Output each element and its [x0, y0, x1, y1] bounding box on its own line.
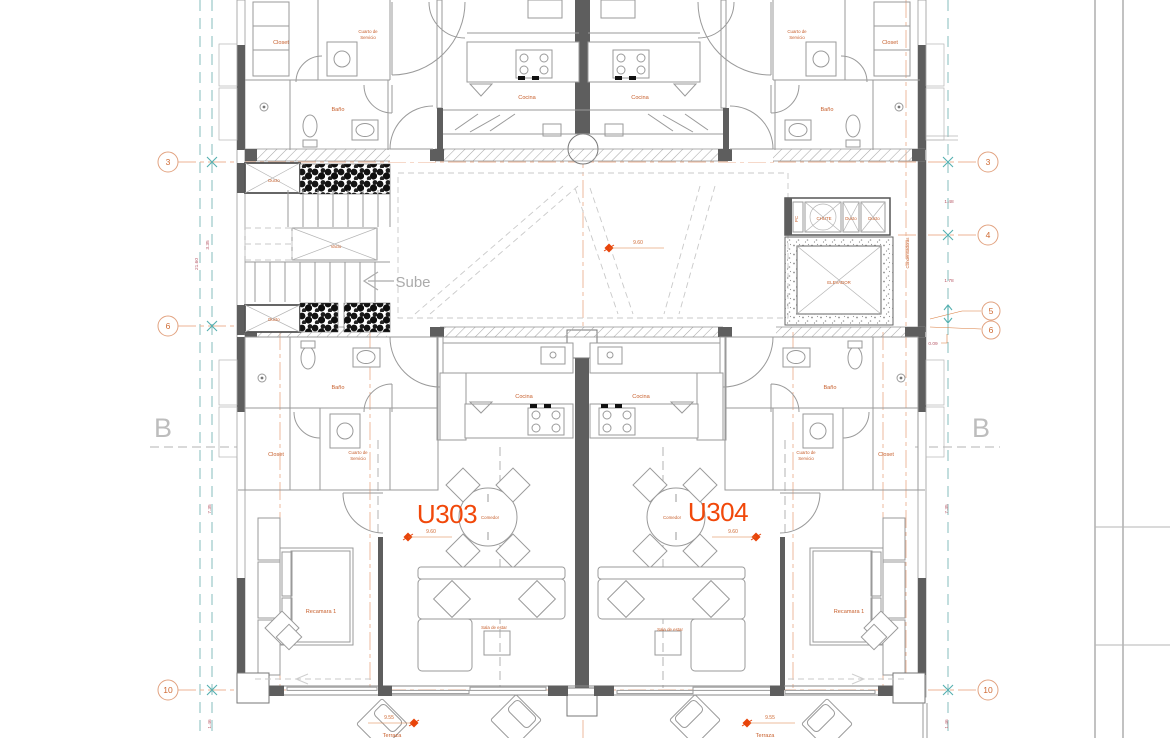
bedroom-right	[810, 518, 905, 675]
label-living-left: Sala de estar	[481, 625, 507, 630]
corridor-void	[398, 173, 788, 318]
label-bath-lower-right: Baño	[823, 385, 836, 391]
label-elevator: ELEVADOR	[827, 280, 851, 285]
grid-bubble-10-right: 10	[978, 680, 998, 700]
dim-1-78: 1.78	[944, 278, 954, 284]
dim-7-35-left: 7.35	[207, 504, 213, 514]
unit-number-left: U303	[417, 499, 477, 529]
svg-text:10: 10	[163, 685, 173, 695]
dim-void: 9.60	[633, 240, 643, 246]
dim-terrace-left: 9.55	[384, 715, 394, 721]
label-terrace-right: Terraza	[756, 733, 776, 738]
label-terrace-left: Terraza	[383, 733, 403, 738]
label-service-upper-left-1: Cuarto de	[358, 29, 378, 34]
dim-u303: 9.60	[426, 529, 436, 535]
grid-bubble-5-right: 5	[982, 302, 1000, 320]
grid-bubble-10-left: 10	[158, 680, 178, 700]
dim-1-46-left: 1.46	[207, 719, 213, 729]
dim-0-09: 0.09	[928, 341, 938, 347]
svg-text:5: 5	[989, 306, 994, 316]
label-closet-lower-left: Closet	[268, 452, 284, 458]
label-condensers: Condensadoras	[905, 237, 910, 269]
terrace-loungers	[357, 695, 927, 738]
planter-top	[300, 164, 390, 194]
lower-right-unit	[590, 337, 925, 690]
label-service-lower-right-1: Cuarto de	[796, 450, 816, 455]
planter-bottom-1	[300, 303, 338, 332]
label-bath-upper-left: Baño	[331, 107, 344, 113]
grid-bubble-3-right: 3	[978, 152, 998, 172]
label-kitchen-upper-left: Cocina	[518, 95, 536, 101]
label-living-right: Sala de estar	[657, 627, 683, 632]
label-service-upper-right-1: Cuarto de	[787, 29, 807, 34]
grid-bubble-6-left: 6	[158, 316, 178, 336]
stair-core	[245, 163, 394, 332]
label-duct-bottom: Ducto	[268, 317, 280, 322]
stairs	[245, 190, 390, 302]
label-closet-lower-right: Closet	[878, 452, 894, 458]
label-bedroom-left: Recamara 1	[306, 609, 336, 615]
living-left	[418, 567, 565, 671]
label-closet-upper-left: Closet	[273, 40, 289, 46]
floor-plan-canvas: Closet Cuarto de Servicio Baño Cocina Co…	[0, 0, 1170, 738]
upper-left-unit	[245, 0, 442, 150]
unit-number-right: U304	[688, 497, 748, 527]
grid-letter-B-left: B	[154, 413, 172, 443]
kitchen-left-lower	[440, 343, 573, 440]
label-duct-top: Ducto	[268, 178, 280, 183]
label-duct-shaft-1: Ducto	[845, 216, 857, 221]
planter-bottom-2	[344, 303, 390, 332]
upper-right-unit	[721, 0, 920, 150]
living-right	[598, 567, 745, 671]
label-bath-upper-right: Baño	[820, 107, 833, 113]
label-service-lower-left-2: Servicio	[350, 456, 366, 461]
label-vacio: Vacio	[331, 244, 342, 249]
dim-terrace-right: 9.55	[765, 715, 775, 721]
svg-text:4: 4	[986, 230, 991, 240]
svg-text:3: 3	[986, 157, 991, 167]
dim-7-35-right: 7.35	[944, 504, 950, 514]
label-service-lower-right-2: Servicio	[798, 456, 814, 461]
grid-bubble-3-left: 3	[158, 152, 178, 172]
grid-bubble-4-right: 4	[978, 225, 998, 245]
site-boundary-lines	[926, 0, 1170, 738]
label-dining-right: Comedor	[663, 515, 682, 520]
dim-u304: 9.60	[728, 529, 738, 535]
label-dining-left: Comedor	[481, 515, 500, 520]
kitchen-right-lower	[590, 343, 723, 440]
bedroom-left	[258, 518, 353, 675]
grid-letter-B-right: B	[972, 413, 990, 443]
grid-bubble-6-right: 6	[982, 321, 1000, 339]
label-closet-upper-right: Closet	[882, 40, 898, 46]
label-service-upper-right-2: Servicio	[789, 35, 805, 40]
label-kitchen-upper-right: Cocina	[631, 95, 649, 101]
sube-arrow	[364, 272, 394, 290]
label-service-upper-left-2: Servicio	[360, 35, 376, 40]
lower-left-unit	[238, 337, 573, 690]
label-duct-shaft-2: Ducto	[868, 216, 880, 221]
label-pc: PC	[794, 216, 799, 222]
label-bedroom-right: Recamara 1	[834, 609, 864, 615]
label-service-lower-left-1: Cuarto de	[348, 450, 368, 455]
dim-1-46-right: 1.46	[944, 719, 950, 729]
dim-1-48: 1.48	[944, 199, 954, 205]
label-kitchen-lower-left: Cocina	[515, 394, 533, 400]
dim-21-60: 21.60	[194, 258, 200, 270]
svg-text:6: 6	[989, 325, 994, 335]
label-bath-lower-left: Baño	[331, 385, 344, 391]
svg-text:10: 10	[983, 685, 993, 695]
floor-plan-screenshot: Closet Cuarto de Servicio Baño Cocina Co…	[0, 0, 1170, 738]
label-kitchen-lower-right: Cocina	[632, 394, 650, 400]
label-chute: CHUTE	[816, 216, 831, 221]
svg-text:6: 6	[166, 321, 171, 331]
dim-3-35: 3.35	[205, 240, 211, 250]
svg-text:3: 3	[166, 157, 171, 167]
label-sube: Sube	[395, 274, 430, 291]
